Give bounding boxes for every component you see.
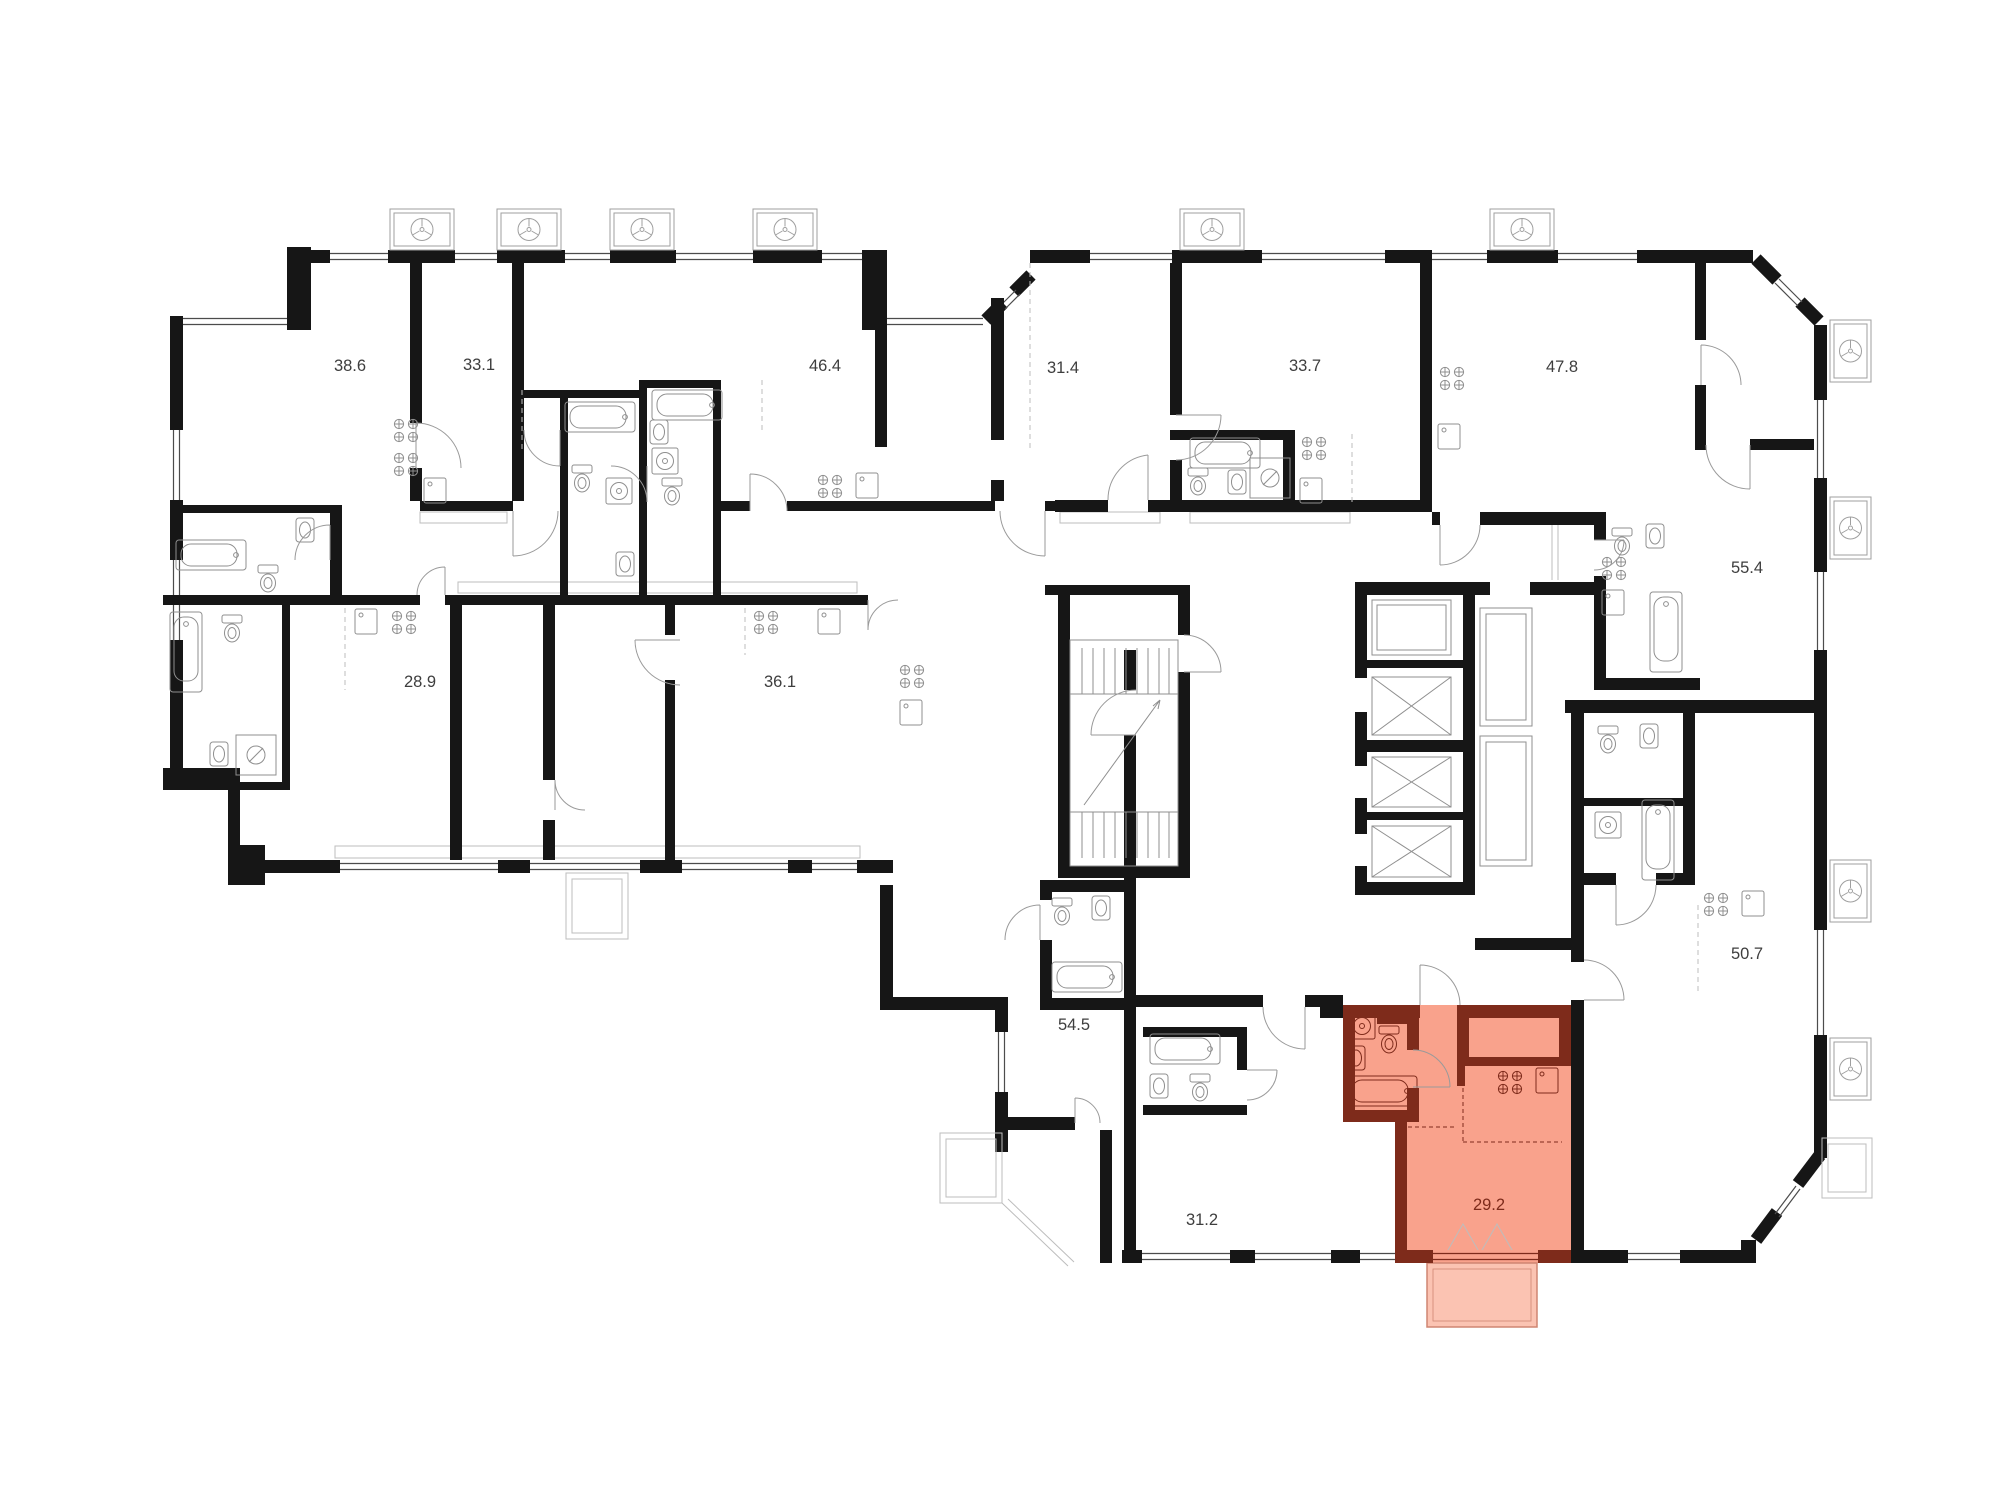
- kitchen-sink-icon: [1742, 891, 1764, 916]
- bathtub-icon: [652, 390, 722, 420]
- unit-label-33-1: 33.1: [463, 356, 495, 374]
- unit-label-47-8: 47.8: [1546, 358, 1578, 376]
- toilet-icon: [1188, 468, 1208, 495]
- balcony: [1822, 1138, 1872, 1198]
- bathtub-icon: [1650, 592, 1682, 672]
- vent-fan-icon: [1490, 209, 1554, 250]
- vent-fan-icon: [390, 209, 454, 250]
- vent-fan-icon: [1830, 860, 1871, 922]
- toilet-icon: [1052, 898, 1072, 925]
- kitchen-sink-icon: [900, 700, 922, 725]
- sink-icon: [650, 420, 668, 444]
- bathtub-icon: [1642, 800, 1674, 880]
- bathtub-icon: [1052, 962, 1122, 992]
- toilet-icon: [222, 615, 242, 642]
- bathtub-icon: [176, 540, 246, 570]
- balconies: [566, 873, 1872, 1203]
- elevator-shaft: [1372, 757, 1451, 807]
- kitchen-sink-icon: [818, 609, 840, 634]
- kitchen-sink-icon: [856, 473, 878, 498]
- elevator-shaft: [1372, 677, 1451, 735]
- vent-fan-icon: [753, 209, 817, 250]
- vent-fan-icon: [497, 209, 561, 250]
- toilet-icon: [1190, 1074, 1210, 1101]
- unit-label-29-2[interactable]: 29.2: [1473, 1196, 1505, 1214]
- kitchen-sink-icon: [1300, 478, 1322, 503]
- sink-icon: [1646, 524, 1664, 548]
- washing-machine-icon: [1595, 812, 1621, 838]
- kitchen-sink-icon: [355, 609, 377, 634]
- fixtures: [170, 367, 1764, 1101]
- washing-machine-icon: [606, 478, 632, 504]
- toilet-icon: [572, 465, 592, 492]
- unit-label-55-4: 55.4: [1731, 559, 1763, 577]
- stove-icon: [818, 475, 841, 497]
- unit-label-50-7: 50.7: [1731, 945, 1763, 963]
- stove-icon: [900, 665, 923, 687]
- shower-icon: [236, 735, 276, 775]
- stove-icon: [1302, 437, 1325, 459]
- unit-label-33-7: 33.7: [1289, 357, 1321, 375]
- sink-icon: [1092, 896, 1110, 920]
- stove-icon: [754, 611, 777, 633]
- washing-machine-icon: [652, 448, 678, 474]
- vent-fan-icon: [1830, 1038, 1871, 1100]
- bathtub-icon: [565, 402, 635, 432]
- vent-fan-icon: [1830, 320, 1871, 382]
- unit-label-46-4: 46.4: [809, 357, 841, 375]
- vent-fan-icon: [610, 209, 674, 250]
- elevator-bank: [1355, 582, 1532, 895]
- vent-fan-icon: [1830, 497, 1871, 559]
- unit-label-36-1: 36.1: [764, 673, 796, 691]
- door-arc: [1420, 965, 1460, 1005]
- toilet-icon: [258, 565, 278, 592]
- unit-label-38-6: 38.6: [334, 357, 366, 375]
- balcony: [566, 873, 628, 939]
- stove-icon: [1440, 367, 1463, 389]
- vent-fan-icon: [1180, 209, 1244, 250]
- unit-label-31-4: 31.4: [1047, 359, 1079, 377]
- floor-plan-canvas: 38.6 33.1 46.4 31.4 33.7 47.8 55.4 28.9 …: [0, 0, 2000, 1500]
- balcony: [940, 1133, 1002, 1203]
- sink-icon: [616, 552, 634, 576]
- unit-label-54-5: 54.5: [1058, 1016, 1090, 1034]
- sink-icon: [1150, 1074, 1168, 1098]
- sink-icon: [210, 742, 228, 766]
- balcony-29-2: [1427, 1263, 1537, 1327]
- toilet-icon: [1598, 726, 1618, 753]
- elevator-shaft: [1372, 826, 1451, 877]
- kitchen-sink-icon: [1438, 424, 1460, 449]
- stove-icon: [392, 611, 415, 633]
- sink-icon: [1228, 470, 1246, 494]
- floor-plan-page: 38.6 33.1 46.4 31.4 33.7 47.8 55.4 28.9 …: [0, 0, 2000, 1500]
- unit-label-31-2: 31.2: [1186, 1211, 1218, 1229]
- stove-icon: [1704, 893, 1727, 915]
- bathtub-icon: [1150, 1034, 1220, 1064]
- sink-icon: [1640, 724, 1658, 748]
- unit-label-28-9: 28.9: [404, 673, 436, 691]
- toilet-icon: [662, 478, 682, 505]
- kitchen-sink-icon: [424, 478, 446, 503]
